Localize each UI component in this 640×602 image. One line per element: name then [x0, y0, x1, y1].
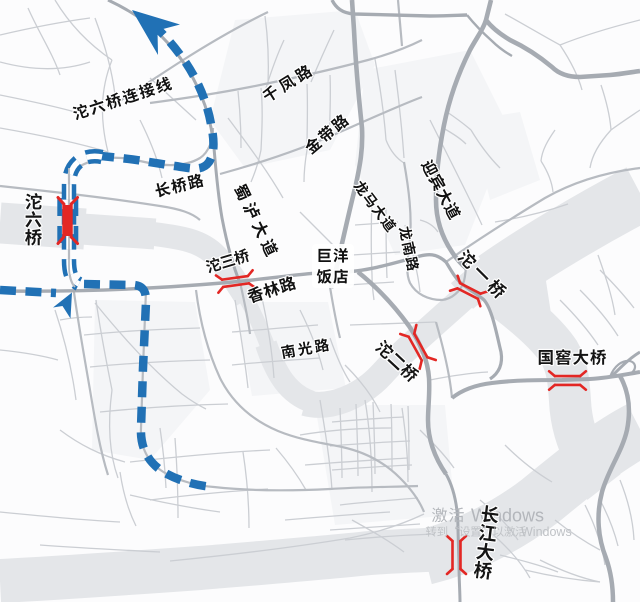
svg-text:Windows: Windows: [471, 506, 544, 526]
svg-text:Windows: Windows: [521, 525, 572, 539]
